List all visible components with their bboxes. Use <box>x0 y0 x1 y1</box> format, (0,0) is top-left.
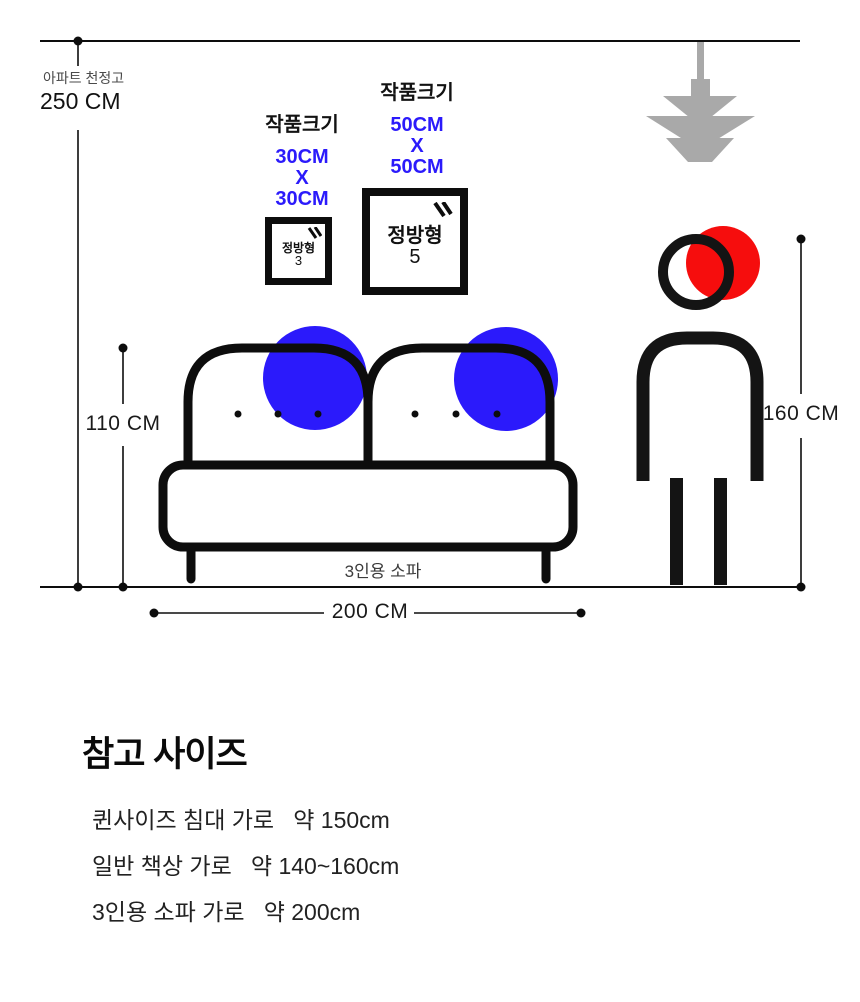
pendant-lamp-icon <box>646 42 755 162</box>
frame-type-label: 정방형 <box>387 226 442 247</box>
room-size-guide-diagram: 아파트 천정고 250 CM 110 CM 160 CM 200 CM 작품크기… <box>0 0 860 1002</box>
frame-number: 3 <box>282 254 315 268</box>
measure-dot <box>119 344 128 353</box>
artwork-size-title: 작품크기 <box>380 76 454 105</box>
glare-icon <box>429 202 453 226</box>
sofa-height-label: 110 CM <box>86 412 161 436</box>
person-leg-left <box>670 478 683 585</box>
ceiling-label: 아파트 천정고 <box>43 68 124 88</box>
artwork-size-title: 작품크기 <box>265 108 339 137</box>
measure-dot <box>797 235 806 244</box>
reference-item: 3인용 소파 가로 약 200cm <box>92 893 360 927</box>
frame-square-3: 정방형 3 <box>265 217 332 285</box>
frame-number: 5 <box>387 247 442 268</box>
artwork-size-30: 작품크기 30CM X 30CM <box>265 108 339 210</box>
sofa-seat-base <box>163 465 573 547</box>
reference-item: 퀸사이즈 침대 가로 약 150cm <box>92 801 390 835</box>
measure-dot <box>797 583 806 592</box>
artwork-dim: 50CM <box>390 115 443 136</box>
measure-dot <box>150 609 159 618</box>
artwork-dim: X <box>410 136 423 157</box>
person-leg-right <box>714 478 727 585</box>
person-body <box>643 338 757 481</box>
artwork-dim: X <box>295 168 308 189</box>
ceiling-value: 250 CM <box>40 88 121 115</box>
artwork-dim: 30CM <box>275 189 328 210</box>
artwork-size-50: 작품크기 50CM X 50CM <box>380 76 454 178</box>
artwork-dim: 50CM <box>390 157 443 178</box>
sofa-width-label: 200 CM <box>332 600 409 624</box>
measure-dot <box>577 609 586 618</box>
person-height-label: 160 CM <box>763 402 840 426</box>
measure-dot <box>74 583 83 592</box>
person-figure <box>643 226 760 585</box>
artwork-dim: 30CM <box>275 147 328 168</box>
reference-item: 일반 책상 가로 약 140~160cm <box>92 847 399 881</box>
measure-dot <box>74 37 83 46</box>
sofa-caption: 3인용 소파 <box>345 557 422 582</box>
measure-dot <box>119 583 128 592</box>
glare-icon <box>304 227 322 245</box>
frame-square-5: 정방형 5 <box>362 188 468 295</box>
reference-title: 참고 사이즈 <box>82 726 247 777</box>
